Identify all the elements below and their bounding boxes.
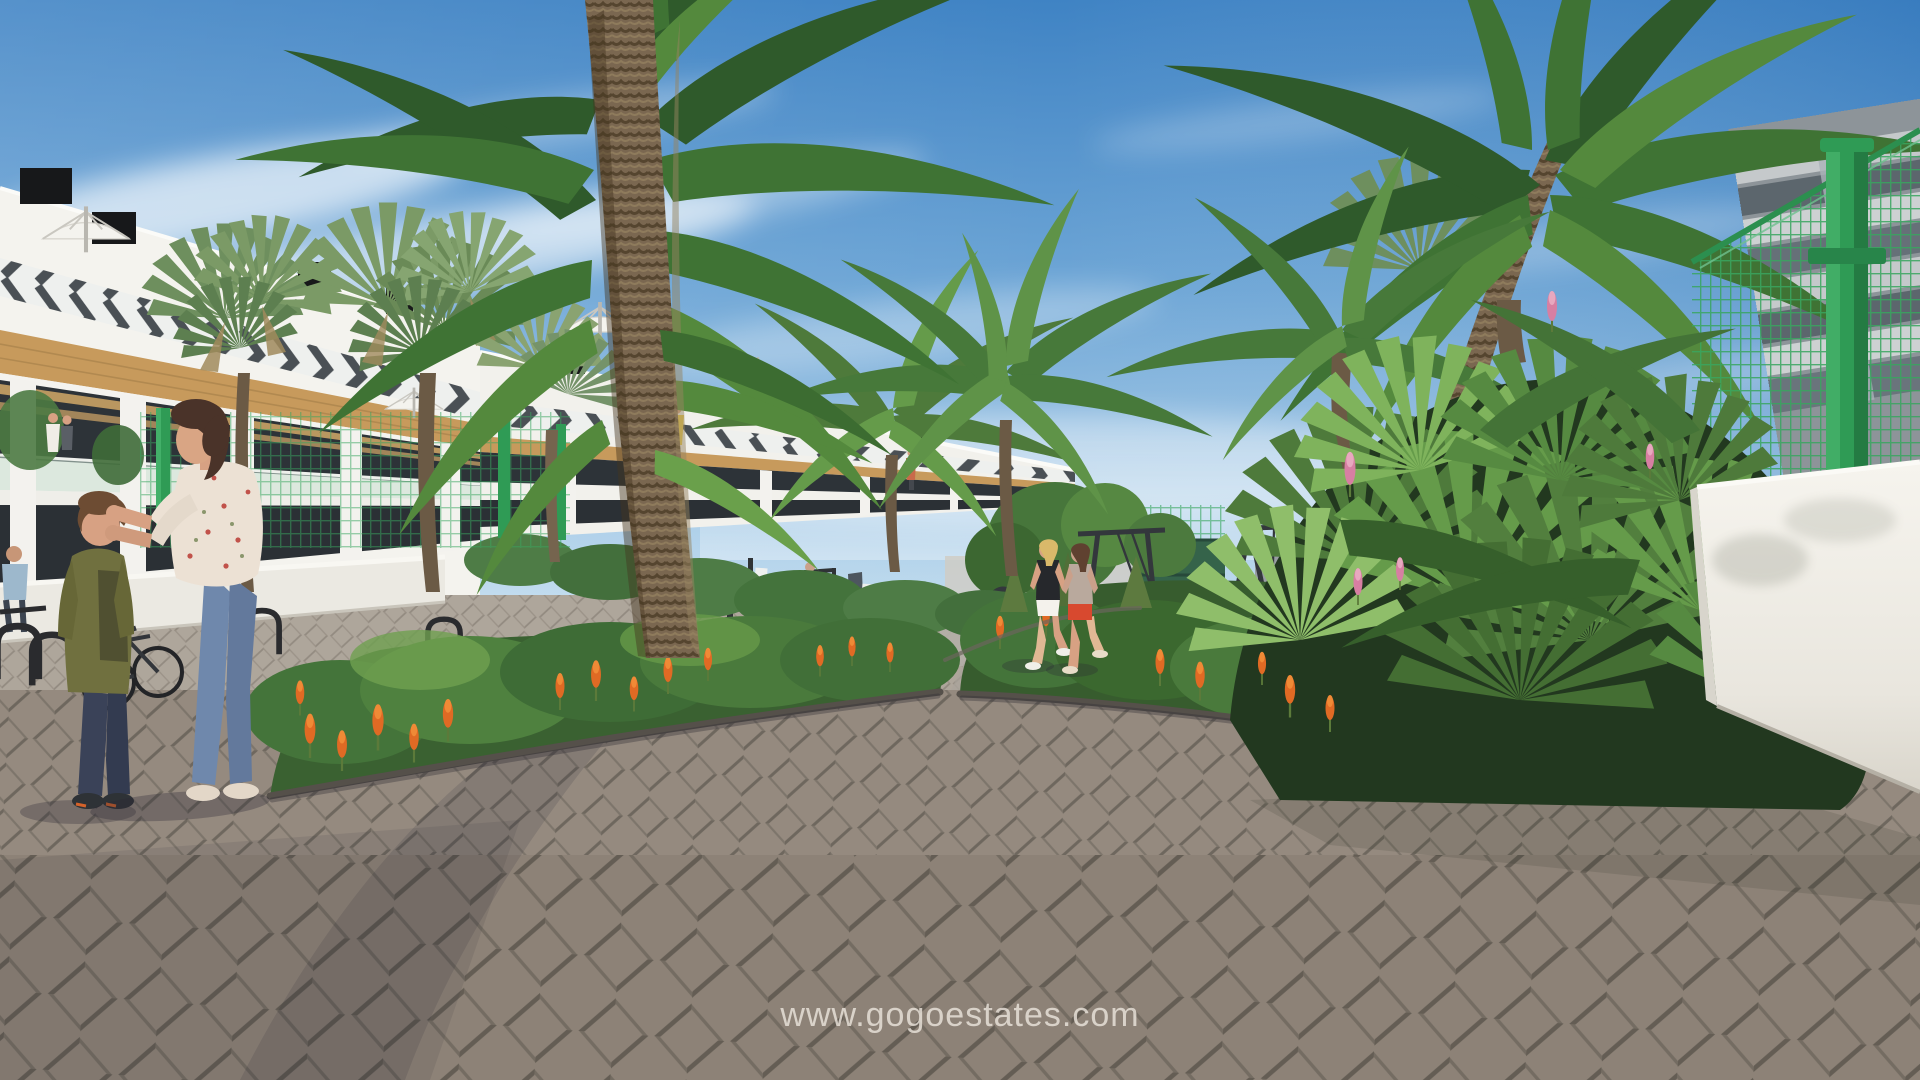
scene-canvas (0, 0, 1920, 1080)
floral-blouse (171, 461, 263, 586)
chimney (20, 168, 72, 204)
foreground-shade (0, 820, 520, 1080)
render-scene: www.gogoestates.com (0, 0, 1920, 1080)
red-shorts (1068, 602, 1092, 620)
fence-bracket (1808, 248, 1886, 264)
balcony-plant (92, 425, 144, 485)
white-shorts (1036, 598, 1060, 616)
watermark-text: www.gogoestates.com (780, 996, 1139, 1035)
